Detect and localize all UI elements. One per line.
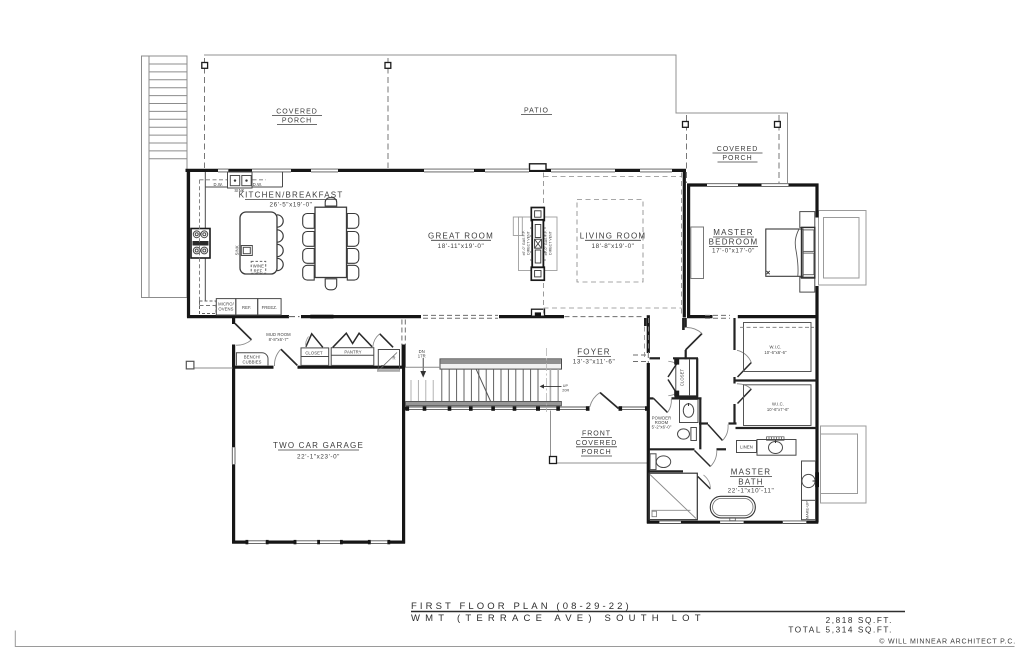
svg-text:REF.: REF. <box>254 268 263 273</box>
svg-text:DIRECT VENT: DIRECT VENT <box>548 231 552 255</box>
svg-text:22'-1"x23'-0": 22'-1"x23'-0" <box>297 454 340 461</box>
svg-text:8'-8"x6'-7": 8'-8"x6'-7" <box>269 337 289 342</box>
svg-text:MAKE-UP: MAKE-UP <box>806 501 810 519</box>
svg-text:5'-2"x6'-0": 5'-2"x6'-0" <box>652 425 672 430</box>
svg-text:17'-0"x17'-0": 17'-0"x17'-0" <box>712 248 755 255</box>
svg-text:R: R <box>392 356 395 361</box>
svg-text:BATH: BATH <box>738 478 764 487</box>
svg-text:PATIO: PATIO <box>524 108 549 115</box>
svg-text:TOTAL 5,314 SQ.FT.: TOTAL 5,314 SQ.FT. <box>788 626 893 635</box>
svg-text:UP: UP <box>563 384 569 388</box>
svg-text:SINK: SINK <box>235 245 240 255</box>
svg-text:KITCHEN/BREAKFAST: KITCHEN/BREAKFAST <box>239 191 344 200</box>
svg-text:CUBBIES: CUBBIES <box>242 359 261 364</box>
svg-text:© WILL MINNEAR ARCHITECT P.C.: © WILL MINNEAR ARCHITECT P.C. <box>879 638 1016 646</box>
svg-text:LINEN: LINEN <box>740 444 753 449</box>
svg-text:BEDROOM: BEDROOM <box>709 238 759 247</box>
svg-text:13'-3"x11'-6": 13'-3"x11'-6" <box>573 359 616 366</box>
svg-text:FOYER: FOYER <box>577 348 611 357</box>
svg-text:MASTER: MASTER <box>731 468 772 477</box>
svg-text:FIRST FLOOR PLAN (08-29-22): FIRST FLOOR PLAN (08-29-22) <box>411 601 632 612</box>
svg-text:LIVING ROOM: LIVING ROOM <box>580 231 647 240</box>
svg-text:26'-5"x19'-0": 26'-5"x19'-0" <box>269 202 312 209</box>
svg-text:18'-11"x19'-0": 18'-11"x19'-0" <box>438 243 485 250</box>
svg-text:10'-6"x6'-6": 10'-6"x6'-6" <box>764 350 787 355</box>
svg-text:COVERED: COVERED <box>717 146 759 153</box>
svg-text:PORCH: PORCH <box>581 449 611 456</box>
svg-text:PORCH: PORCH <box>282 118 312 125</box>
svg-text:TWO CAR GARAGE: TWO CAR GARAGE <box>273 441 364 450</box>
svg-text:20R: 20R <box>562 389 569 393</box>
svg-text:17R: 17R <box>418 354 426 359</box>
svg-text:W.I.C.: W.I.C. <box>772 402 784 407</box>
svg-text:MASTER: MASTER <box>713 228 754 237</box>
svg-text:COVERED: COVERED <box>576 440 618 447</box>
svg-text:OVENS: OVENS <box>218 307 233 312</box>
svg-text:W.I.C.: W.I.C. <box>770 345 782 350</box>
svg-text:PANTRY: PANTRY <box>344 349 361 354</box>
svg-text:2,818 SQ.FT.: 2,818 SQ.FT. <box>826 616 893 625</box>
svg-text:REF.: REF. <box>242 305 251 310</box>
svg-text:22'-1"x10'-11": 22'-1"x10'-11" <box>728 488 775 495</box>
svg-text:FREEZ.: FREEZ. <box>262 305 278 310</box>
svg-text:COVERED: COVERED <box>276 109 318 116</box>
svg-text:DIRECT VENT: DIRECT VENT <box>526 231 530 255</box>
svg-text:CLOSET: CLOSET <box>680 368 685 386</box>
svg-text:18'-8"x19'-0": 18'-8"x19'-0" <box>591 243 634 250</box>
svg-text:GREAT ROOM: GREAT ROOM <box>428 231 494 240</box>
svg-text:PORCH: PORCH <box>722 155 752 162</box>
svg-text:10'-6"x7'-6": 10'-6"x7'-6" <box>767 407 790 412</box>
svg-text:D.W.: D.W. <box>253 182 262 187</box>
svg-text:CLOSET: CLOSET <box>305 350 323 355</box>
svg-text:FRONT: FRONT <box>582 431 611 438</box>
svg-text:D.W.: D.W. <box>214 182 223 187</box>
svg-text:WMT (TERRACE AVE) SOUTH LO: WMT (TERRACE AVE) SOUTH LOT <box>411 613 706 624</box>
svg-text:D: D <box>381 364 384 369</box>
